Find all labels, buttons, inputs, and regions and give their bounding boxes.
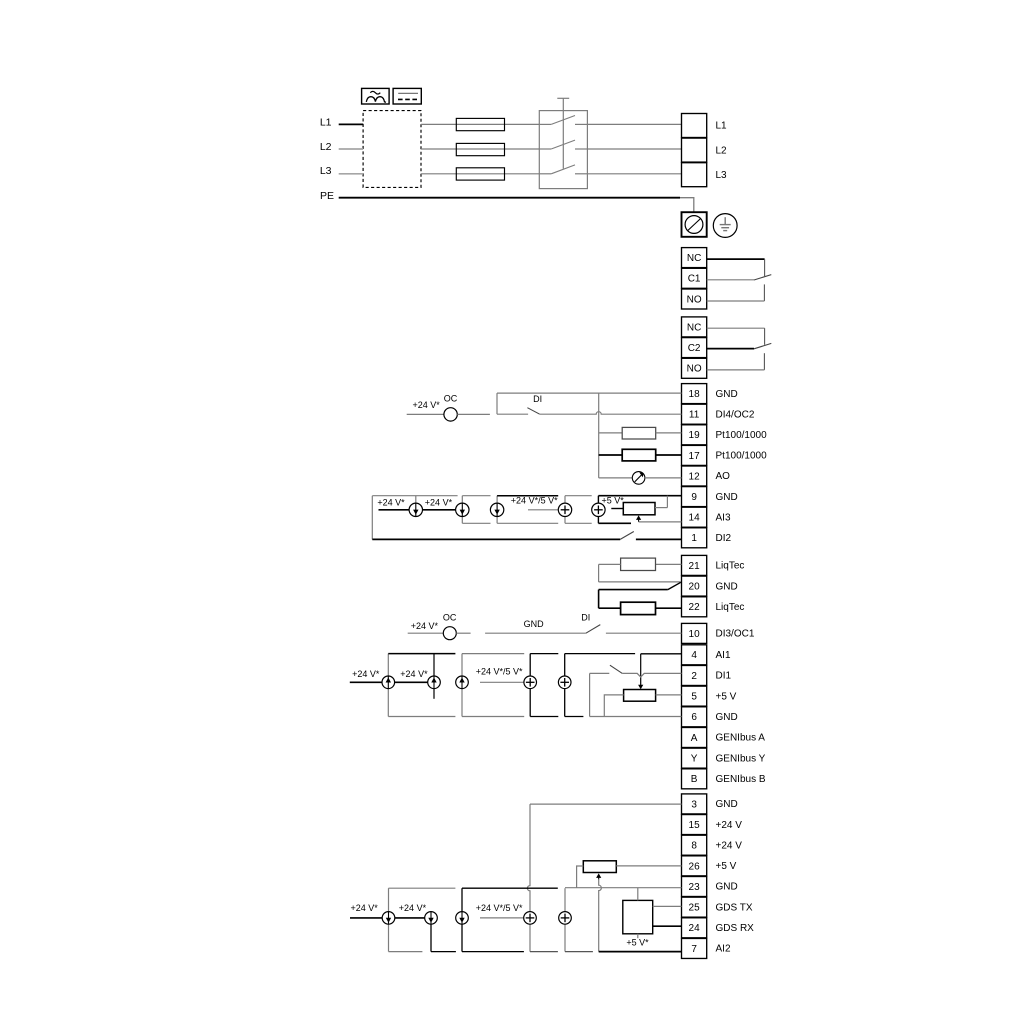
svg-text:+24 V: +24 V bbox=[716, 820, 743, 831]
svg-text:25: 25 bbox=[689, 903, 701, 914]
svg-text:AO: AO bbox=[716, 471, 731, 482]
svg-text:Pt100/1000: Pt100/1000 bbox=[716, 430, 768, 441]
svg-text:LiqTec: LiqTec bbox=[716, 602, 745, 613]
svg-text:GENIbus B: GENIbus B bbox=[716, 774, 766, 785]
svg-text:GDS RX: GDS RX bbox=[716, 923, 755, 934]
svg-text:+24 V*: +24 V* bbox=[411, 621, 439, 631]
svg-text:OC: OC bbox=[444, 394, 458, 404]
svg-text:GND: GND bbox=[716, 581, 738, 592]
svg-text:12: 12 bbox=[689, 471, 701, 482]
svg-text:LiqTec: LiqTec bbox=[716, 561, 745, 572]
svg-text:L3: L3 bbox=[716, 170, 728, 181]
svg-text:Pt100/1000: Pt100/1000 bbox=[716, 451, 768, 462]
svg-text:Y: Y bbox=[691, 754, 698, 765]
svg-text:14: 14 bbox=[689, 513, 701, 524]
svg-text:GDS TX: GDS TX bbox=[716, 902, 753, 913]
svg-text:+24 V*: +24 V* bbox=[351, 903, 379, 913]
svg-text:+5 V*: +5 V* bbox=[602, 496, 625, 506]
svg-text:5: 5 bbox=[691, 692, 697, 703]
svg-text:+5 V*: +5 V* bbox=[626, 938, 649, 948]
svg-text:C2: C2 bbox=[688, 343, 701, 354]
svg-text:10: 10 bbox=[689, 629, 701, 640]
svg-text:4: 4 bbox=[691, 650, 697, 661]
svg-text:A: A bbox=[691, 733, 698, 744]
svg-text:PE: PE bbox=[320, 190, 334, 202]
svg-text:+5 V: +5 V bbox=[716, 691, 737, 702]
svg-text:NO: NO bbox=[687, 364, 702, 375]
svg-text:23: 23 bbox=[689, 882, 701, 893]
svg-text:AI2: AI2 bbox=[716, 944, 731, 955]
svg-text:L1: L1 bbox=[320, 116, 332, 128]
svg-text:+24 V*: +24 V* bbox=[413, 400, 441, 410]
svg-text:L2: L2 bbox=[716, 145, 728, 156]
svg-text:22: 22 bbox=[689, 602, 701, 613]
svg-text:DI2: DI2 bbox=[716, 533, 732, 544]
svg-text:3: 3 bbox=[691, 799, 697, 810]
svg-text:+24 V*: +24 V* bbox=[425, 497, 453, 507]
svg-text:26: 26 bbox=[689, 861, 701, 872]
svg-text:+24 V*: +24 V* bbox=[352, 669, 380, 679]
svg-text:17: 17 bbox=[689, 451, 701, 462]
svg-text:GENIbus A: GENIbus A bbox=[716, 733, 766, 744]
svg-text:OC: OC bbox=[443, 612, 457, 622]
svg-text:NC: NC bbox=[687, 253, 701, 264]
svg-text:AI3: AI3 bbox=[716, 512, 731, 523]
svg-text:AI1: AI1 bbox=[716, 650, 731, 661]
svg-text:+24 V*/5 V*: +24 V*/5 V* bbox=[476, 667, 523, 677]
svg-text:9: 9 bbox=[691, 492, 697, 503]
svg-text:GENIbus Y: GENIbus Y bbox=[716, 753, 766, 764]
svg-text:L2: L2 bbox=[320, 141, 332, 153]
svg-text:18: 18 bbox=[689, 389, 701, 400]
svg-text:NC: NC bbox=[687, 322, 701, 333]
svg-text:C1: C1 bbox=[688, 274, 701, 285]
svg-text:15: 15 bbox=[689, 820, 701, 831]
svg-text:DI: DI bbox=[581, 612, 590, 622]
svg-text:GND: GND bbox=[716, 882, 738, 893]
svg-text:B: B bbox=[691, 774, 698, 785]
svg-text:19: 19 bbox=[689, 430, 701, 441]
svg-text:DI3/OC1: DI3/OC1 bbox=[716, 629, 755, 640]
svg-text:+24 V*: +24 V* bbox=[377, 497, 405, 507]
svg-text:+24 V*: +24 V* bbox=[399, 903, 427, 913]
svg-text:+5 V: +5 V bbox=[716, 861, 737, 872]
svg-text:DI4/OC2: DI4/OC2 bbox=[716, 409, 755, 420]
svg-text:+24 V: +24 V bbox=[716, 840, 743, 851]
svg-text:20: 20 bbox=[689, 582, 701, 593]
svg-text:11: 11 bbox=[689, 410, 700, 421]
svg-text:GND: GND bbox=[716, 389, 738, 400]
svg-text:GND: GND bbox=[524, 619, 545, 629]
svg-text:7: 7 bbox=[691, 944, 697, 955]
svg-text:+24 V*/5 V*: +24 V*/5 V* bbox=[511, 496, 558, 506]
svg-text:GND: GND bbox=[716, 712, 738, 723]
svg-text:+24 V*/5 V*: +24 V*/5 V* bbox=[476, 903, 523, 913]
svg-text:+24 V*: +24 V* bbox=[400, 669, 428, 679]
svg-text:L1: L1 bbox=[716, 121, 728, 132]
svg-text:DI: DI bbox=[533, 394, 542, 404]
svg-text:GND: GND bbox=[716, 799, 738, 810]
svg-text:8: 8 bbox=[691, 841, 697, 852]
svg-text:L3: L3 bbox=[320, 165, 332, 177]
svg-text:6: 6 bbox=[691, 712, 697, 723]
svg-text:21: 21 bbox=[689, 561, 701, 572]
svg-text:1: 1 bbox=[691, 533, 697, 544]
svg-text:NO: NO bbox=[687, 294, 702, 305]
svg-text:2: 2 bbox=[691, 671, 697, 682]
svg-text:24: 24 bbox=[689, 923, 701, 934]
svg-text:DI1: DI1 bbox=[716, 671, 732, 682]
svg-text:GND: GND bbox=[716, 492, 738, 503]
